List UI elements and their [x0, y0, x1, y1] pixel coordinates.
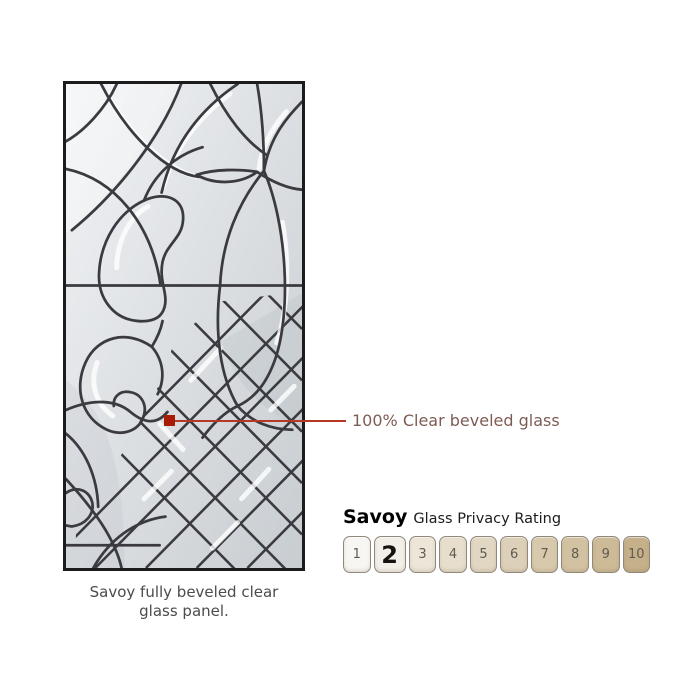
privacy-rating-level-5: 5 — [470, 536, 498, 573]
privacy-rating-level-4: 4 — [439, 536, 467, 573]
rating-product-name: Savoy — [343, 506, 407, 528]
annotation-marker — [164, 415, 175, 426]
annotation-label: 100% Clear beveled glass — [352, 411, 560, 430]
privacy-rating-level-8: 8 — [561, 536, 589, 573]
glass-panel — [63, 81, 305, 571]
privacy-rating-level-9: 9 — [592, 536, 620, 573]
privacy-rating-level-2: 2 — [374, 536, 406, 573]
panel-caption: Savoy fully beveled clear glass panel. — [63, 583, 305, 621]
product-showcase: Savoy fully beveled clear glass panel. 1… — [0, 0, 700, 700]
privacy-rating-level-7: 7 — [531, 536, 559, 573]
privacy-rating-level-10: 10 — [623, 536, 651, 573]
privacy-rating-level-6: 6 — [500, 536, 528, 573]
privacy-rating-header: SavoyGlass Privacy Rating — [343, 506, 561, 528]
annotation-leader-line — [175, 420, 346, 422]
panel-caption-text: Savoy fully beveled clear glass panel. — [82, 583, 287, 621]
privacy-rating-level-1: 1 — [343, 536, 371, 573]
privacy-rating-level-3: 3 — [409, 536, 437, 573]
rating-subtitle: Glass Privacy Rating — [413, 511, 561, 527]
privacy-rating-scale: 12345678910 — [343, 536, 650, 573]
glass-panel-image — [66, 84, 302, 568]
